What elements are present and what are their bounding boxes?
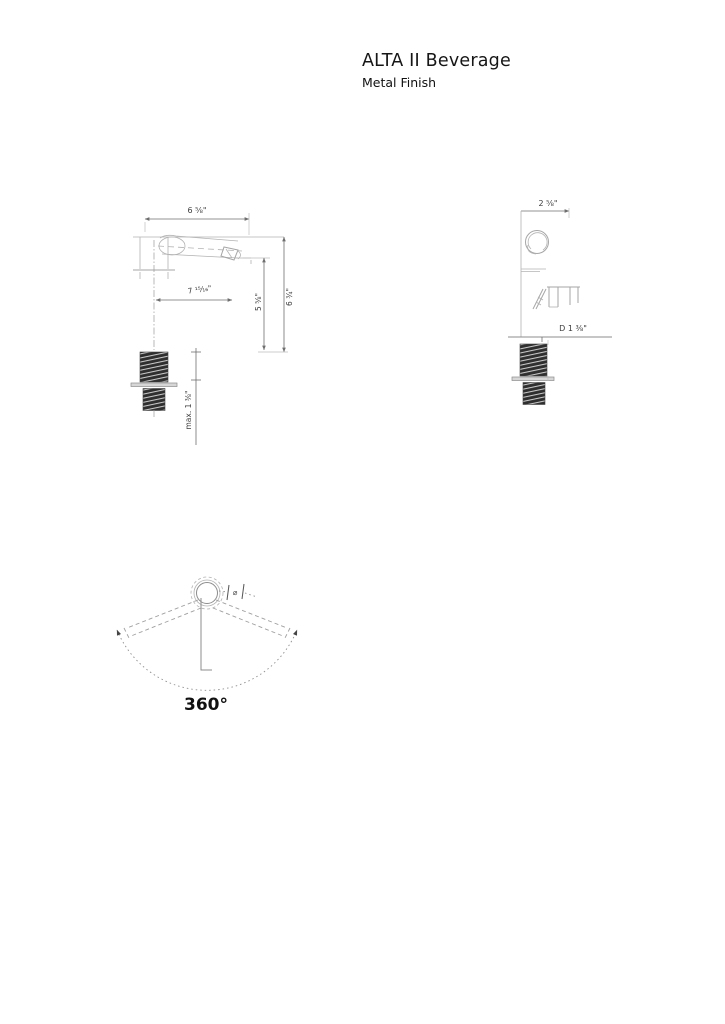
rotation-arc	[117, 630, 297, 690]
base-top-view	[191, 577, 223, 609]
side-diameter-dimension: D 1 ⅜"	[508, 324, 612, 342]
handle-side	[533, 287, 580, 309]
front-max-thickness-label: max. 1 ⅜"	[184, 391, 193, 430]
faucet-side-outline	[521, 211, 580, 337]
page-subtitle: Metal Finish	[362, 75, 436, 90]
front-width-label: 6 ⅝"	[187, 206, 206, 215]
rotation-angle-label: 360°	[184, 695, 228, 715]
diameter-marker-label: ⌀	[233, 588, 238, 597]
spec-sheet-page: ALTA II Beverage Metal Finish 6 ⅝"	[0, 0, 725, 1024]
front-overall-height-label: 6 ¾"	[285, 288, 294, 306]
front-inner-height-label: 5 ⅝"	[254, 293, 263, 311]
threaded-shank-front	[131, 352, 177, 418]
side-view-drawing: 2 ⅝"	[500, 185, 620, 420]
front-width-dimension: 6 ⅝"	[145, 206, 249, 235]
side-depth-label: 2 ⅝"	[538, 199, 557, 208]
shank-flange-front	[131, 383, 177, 387]
front-max-thickness-dimension: max. 1 ⅜"	[184, 348, 201, 445]
page-title: ALTA II Beverage	[362, 51, 511, 71]
front-reach-label: 7 ¹⁵⁄₁₆"	[187, 283, 212, 295]
front-overall-height-dimension: 6 ¾"	[258, 237, 294, 352]
threaded-shank-side	[512, 340, 554, 405]
side-diameter-label: D 1 ⅜"	[559, 324, 587, 333]
front-inner-height-dimension: 5 ⅝"	[243, 258, 270, 350]
front-reach-dimension: 7 ¹⁵⁄₁₆"	[156, 283, 232, 300]
spout-end-circle	[526, 231, 549, 254]
diameter-marker: ⌀	[219, 584, 257, 600]
rotation-view-drawing: ⌀ 360°	[105, 560, 320, 720]
front-view-drawing: 6 ⅝" 7 ¹⁵⁄₁₆"	[120, 190, 310, 460]
side-depth-dimension: 2 ⅝"	[521, 199, 569, 218]
